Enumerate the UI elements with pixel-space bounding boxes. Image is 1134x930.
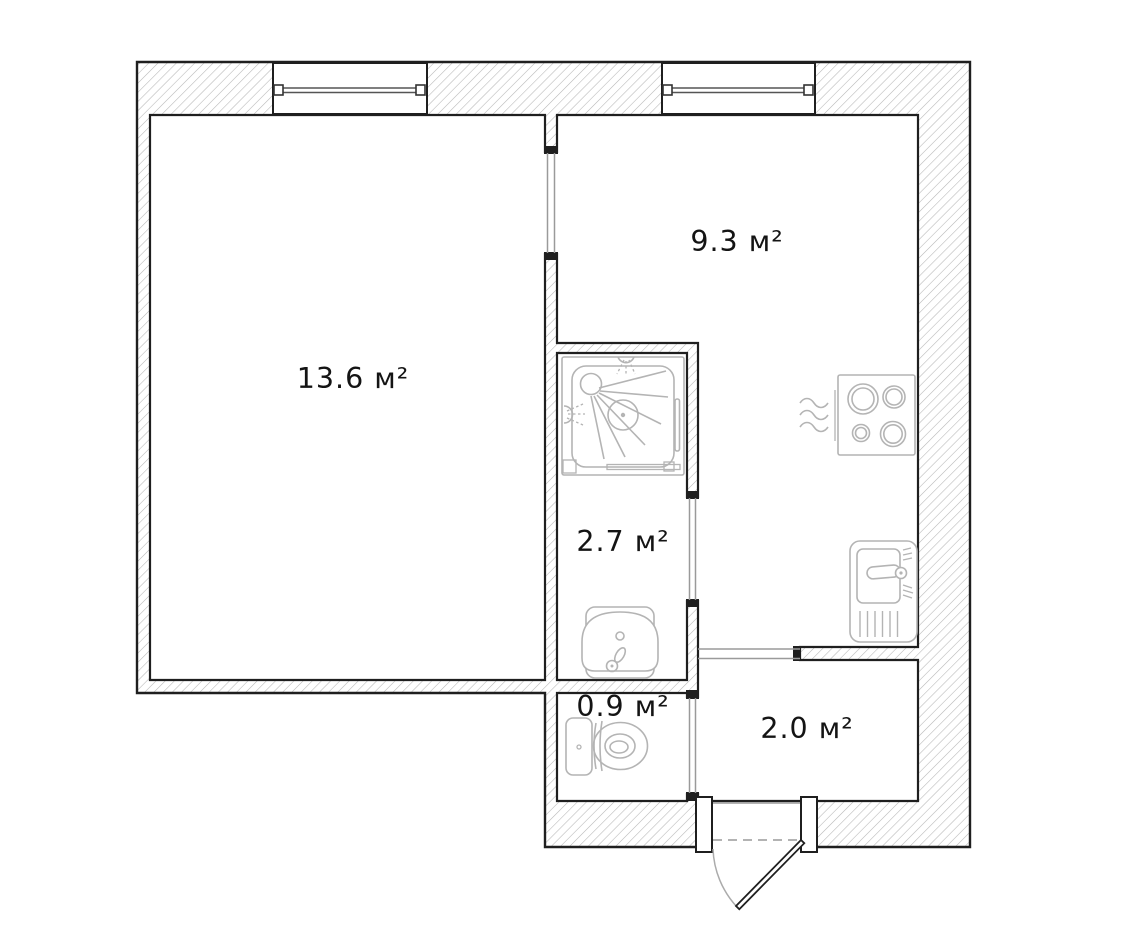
door-swing-arc	[713, 849, 737, 907]
living-room-area-label: 13.6 м²	[297, 362, 409, 395]
window-kitchen	[662, 63, 815, 114]
door-jamb	[696, 797, 712, 852]
washbasin-icon	[582, 607, 658, 678]
window-frame-block	[804, 85, 813, 95]
sink-drain-lines	[860, 611, 898, 637]
window-frame-block	[416, 85, 425, 95]
shower-nozzle-spray	[617, 360, 635, 376]
shower-cabin-icon	[562, 357, 684, 475]
opening-kitchen-hallway	[698, 649, 800, 659]
window-frame-block	[663, 85, 672, 95]
cooktop-icon	[800, 375, 915, 455]
doorway-living-kitchen	[548, 153, 555, 253]
hallway-area-label: 2.0 м²	[760, 712, 853, 745]
room-labels: 13.6 м² 9.3 м² 2.7 м² 0.9 м² 2.0 м²	[297, 225, 854, 745]
door-leaf	[736, 840, 804, 909]
heat-waves	[800, 399, 828, 432]
window-living-room	[273, 63, 427, 114]
shower-door-handle	[675, 399, 680, 451]
toilet-bowl	[594, 723, 648, 770]
kitchen-area-label: 9.3 м²	[690, 225, 783, 258]
toilet-area-label: 0.9 м²	[576, 690, 669, 723]
bathroom-area-label: 2.7 м²	[576, 525, 669, 558]
toilet-icon	[566, 718, 648, 775]
living-room-outline	[150, 115, 545, 680]
window-frame-block	[274, 85, 283, 95]
floor-plan: 13.6 м² 9.3 м² 2.7 м² 0.9 м² 2.0 м²	[0, 0, 1134, 930]
entrance-door	[696, 797, 817, 909]
doorway-bathroom	[690, 498, 696, 600]
kitchen-sink-icon	[850, 541, 917, 642]
shower-spray-lines	[591, 371, 668, 459]
floor-plan-svg: 13.6 м² 9.3 м² 2.7 м² 0.9 м² 2.0 м²	[0, 0, 1134, 930]
doorway-toilet	[690, 698, 696, 793]
toilet-tank	[566, 718, 592, 775]
